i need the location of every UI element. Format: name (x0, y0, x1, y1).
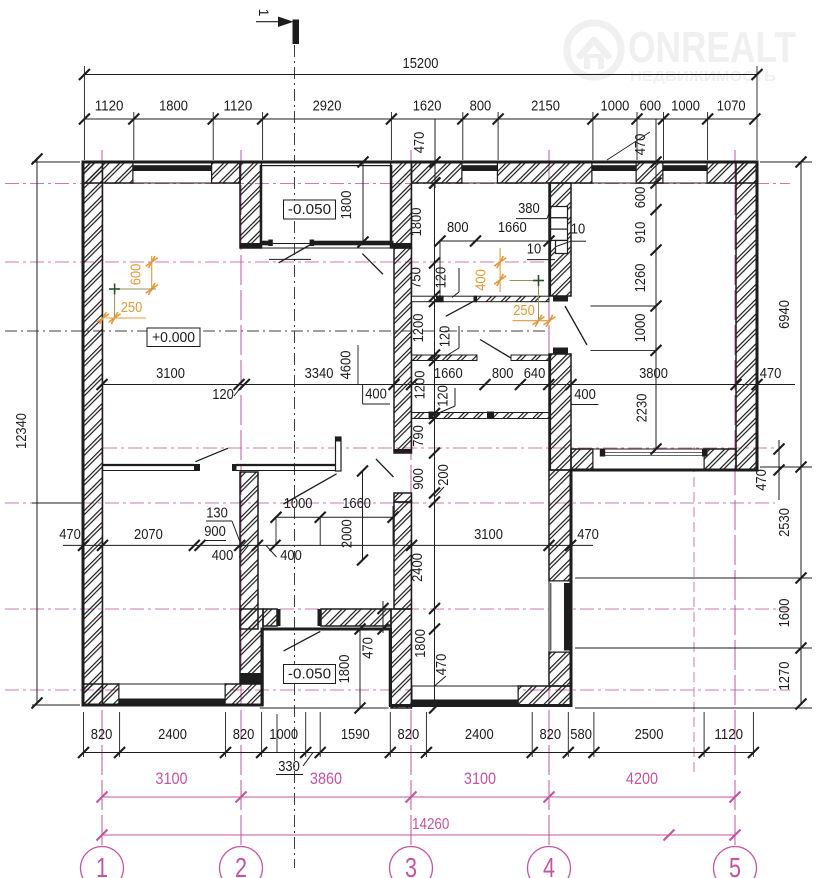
svg-text:1660: 1660 (342, 495, 371, 512)
svg-text:820: 820 (233, 726, 255, 743)
svg-text:800: 800 (492, 365, 514, 382)
svg-text:1800: 1800 (412, 629, 429, 658)
svg-text:1270: 1270 (776, 662, 793, 691)
svg-text:1000: 1000 (601, 98, 630, 115)
svg-text:470: 470 (753, 469, 770, 491)
svg-text:820: 820 (539, 726, 561, 743)
svg-text:790: 790 (410, 425, 427, 447)
svg-text:600: 600 (632, 187, 649, 209)
svg-text:120: 120 (212, 386, 234, 403)
svg-text:470: 470 (411, 132, 428, 154)
svg-text:5: 5 (729, 852, 741, 878)
svg-text:400: 400 (280, 547, 302, 564)
svg-text:15200: 15200 (403, 55, 439, 72)
svg-text:3100: 3100 (474, 526, 503, 543)
svg-text:1800: 1800 (336, 655, 353, 684)
svg-text:1000: 1000 (269, 726, 298, 743)
svg-text:640: 640 (524, 365, 546, 382)
svg-text:1800: 1800 (338, 191, 355, 220)
svg-text:3: 3 (405, 852, 417, 878)
svg-text:600: 600 (128, 264, 145, 286)
svg-text:1200: 1200 (410, 314, 427, 343)
svg-text:+0.000: +0.000 (152, 329, 195, 346)
svg-text:3340: 3340 (305, 365, 334, 382)
svg-text:1000: 1000 (632, 314, 649, 343)
svg-text:1070: 1070 (717, 98, 746, 115)
svg-text:120: 120 (433, 267, 450, 289)
svg-text:1590: 1590 (341, 726, 370, 743)
svg-text:820: 820 (91, 726, 113, 743)
svg-text:120: 120 (437, 326, 454, 348)
svg-text:330: 330 (278, 758, 300, 775)
svg-text:2500: 2500 (635, 726, 664, 743)
svg-text:2400: 2400 (409, 553, 426, 582)
svg-text:2920: 2920 (313, 98, 342, 115)
svg-text:380: 380 (518, 200, 540, 217)
svg-text:2: 2 (235, 852, 247, 878)
svg-text:3100: 3100 (156, 365, 185, 382)
svg-text:1120: 1120 (224, 98, 253, 115)
svg-text:400: 400 (212, 547, 234, 564)
svg-text:2400: 2400 (465, 726, 494, 743)
svg-text:2530: 2530 (776, 508, 793, 537)
svg-text:580: 580 (570, 726, 592, 743)
svg-text:1800: 1800 (408, 208, 425, 237)
svg-text:2400: 2400 (158, 726, 187, 743)
svg-text:2000: 2000 (338, 519, 355, 548)
svg-text:200: 200 (435, 464, 452, 486)
svg-text:470: 470 (59, 526, 81, 543)
svg-text:1: 1 (96, 852, 108, 878)
svg-text:4: 4 (543, 852, 555, 878)
svg-text:1800: 1800 (159, 98, 188, 115)
svg-text:1660: 1660 (434, 365, 463, 382)
svg-text:-0.050: -0.050 (288, 201, 331, 218)
svg-text:-0.050: -0.050 (288, 666, 331, 683)
svg-text:1000: 1000 (671, 98, 700, 115)
svg-text:800: 800 (470, 98, 492, 115)
svg-text:1120: 1120 (714, 726, 743, 743)
svg-text:130: 130 (206, 505, 228, 522)
svg-text:4200: 4200 (626, 769, 658, 788)
svg-text:800: 800 (447, 219, 469, 236)
svg-text:1600: 1600 (776, 599, 793, 628)
svg-text:470: 470 (359, 637, 376, 659)
svg-text:820: 820 (398, 726, 420, 743)
svg-text:1200: 1200 (412, 371, 429, 400)
svg-text:6940: 6940 (776, 300, 793, 329)
svg-text:1: 1 (256, 9, 272, 17)
svg-text:400: 400 (574, 386, 596, 403)
svg-text:10: 10 (571, 221, 585, 238)
svg-text:400: 400 (365, 386, 387, 403)
svg-text:470: 470 (760, 365, 782, 382)
svg-text:250: 250 (513, 302, 535, 319)
svg-text:12340: 12340 (13, 413, 30, 449)
svg-text:470: 470 (632, 134, 649, 156)
svg-text:750: 750 (408, 267, 425, 289)
svg-text:3100: 3100 (464, 769, 496, 788)
svg-text:10: 10 (527, 241, 541, 258)
svg-text:910: 910 (632, 222, 649, 244)
svg-text:2230: 2230 (634, 394, 651, 423)
svg-text:1260: 1260 (632, 264, 649, 293)
svg-text:14260: 14260 (412, 816, 450, 833)
svg-text:470: 470 (577, 526, 599, 543)
svg-text:1120: 1120 (95, 98, 124, 115)
svg-text:ONREALT: ONREALT (628, 23, 796, 72)
svg-text:1660: 1660 (498, 219, 527, 236)
svg-text:250: 250 (121, 299, 143, 316)
svg-text:400: 400 (473, 269, 490, 291)
svg-text:1620: 1620 (413, 98, 442, 115)
svg-text:120: 120 (435, 385, 452, 407)
svg-text:1000: 1000 (284, 495, 313, 512)
svg-text:2070: 2070 (134, 526, 163, 543)
svg-text:600: 600 (639, 98, 661, 115)
svg-text:900: 900 (410, 468, 427, 490)
svg-text:900: 900 (204, 523, 226, 540)
svg-text:2150: 2150 (531, 98, 560, 115)
svg-text:470: 470 (433, 654, 450, 676)
svg-text:4600: 4600 (338, 351, 355, 380)
svg-text:3860: 3860 (310, 769, 342, 788)
svg-text:3100: 3100 (155, 769, 187, 788)
svg-text:3800: 3800 (639, 365, 668, 382)
